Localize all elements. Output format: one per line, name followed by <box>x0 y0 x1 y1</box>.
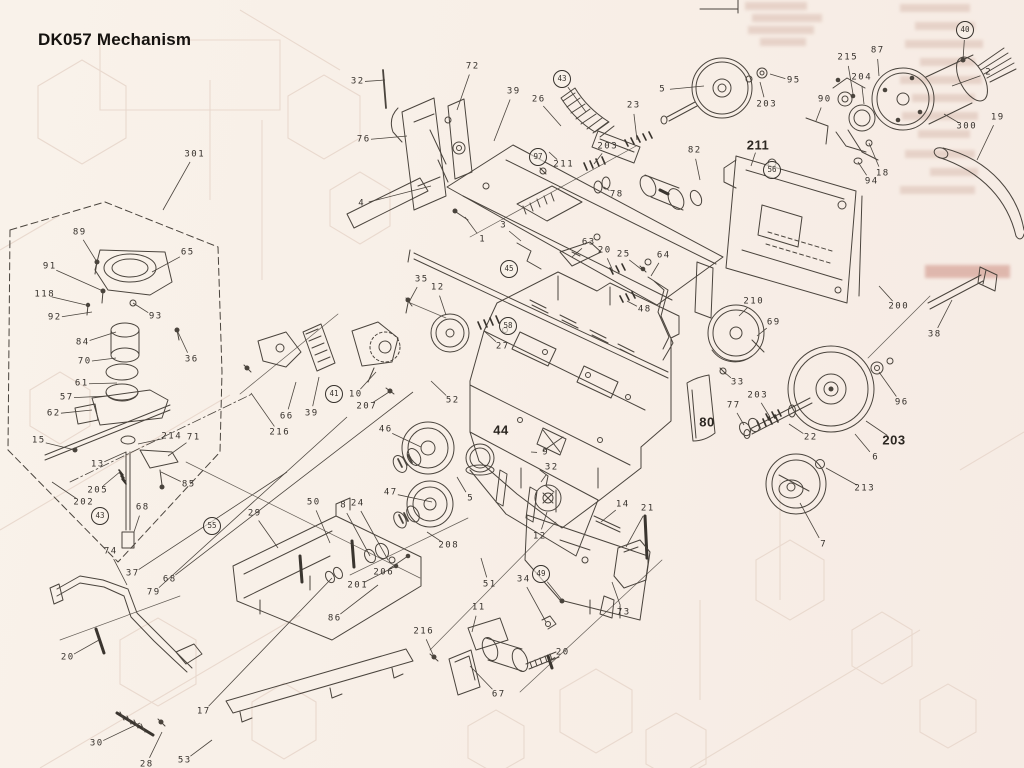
part-label-56: 56 <box>763 161 781 179</box>
part-label-203: 203 <box>882 434 905 447</box>
part-label-32: 32 <box>349 78 364 87</box>
part-label-91: 91 <box>41 263 56 272</box>
part-label-39: 39 <box>505 88 520 97</box>
part-label-23: 23 <box>625 102 640 111</box>
part-label-10: 10 <box>347 391 362 400</box>
part-label-37: 37 <box>124 570 139 579</box>
part-label-33: 33 <box>729 379 744 388</box>
part-label-78: 78 <box>608 191 623 200</box>
part-label-96: 96 <box>893 399 908 408</box>
part-label-69: 69 <box>765 319 780 328</box>
part-label-11: 11 <box>470 604 485 613</box>
part-label-66: 66 <box>278 413 293 422</box>
part-label-35: 35 <box>413 276 428 285</box>
part-label-30: 30 <box>88 740 103 749</box>
part-label-40: 40 <box>956 21 974 39</box>
part-label-71: 71 <box>185 434 200 443</box>
part-label-203: 203 <box>755 101 777 110</box>
part-label-49: 49 <box>532 565 550 583</box>
part-label-45: 45 <box>500 260 518 278</box>
part-label-8: 8 <box>339 502 347 511</box>
part-label-61: 61 <box>73 380 88 389</box>
part-label-94: 94 <box>863 178 878 187</box>
part-label-27: 27 <box>494 343 509 352</box>
part-label-4: 4 <box>357 200 365 209</box>
part-label-26: 26 <box>530 96 545 105</box>
part-label-200: 200 <box>887 303 909 312</box>
part-label-38: 38 <box>926 331 941 340</box>
part-label-3: 3 <box>499 222 507 231</box>
part-label-86: 86 <box>326 615 341 624</box>
part-label-210: 210 <box>742 298 764 307</box>
part-label-70: 70 <box>76 358 91 367</box>
part-label-21: 21 <box>639 505 654 514</box>
part-label-211: 211 <box>552 161 574 170</box>
part-label-43: 43 <box>553 70 571 88</box>
part-label-67: 67 <box>490 691 505 700</box>
part-label-53: 53 <box>176 757 191 766</box>
part-label-5: 5 <box>658 86 666 95</box>
part-label-55: 55 <box>203 517 221 535</box>
part-label-213: 213 <box>853 485 875 494</box>
part-label-6: 6 <box>871 454 879 463</box>
part-label-20: 20 <box>554 649 569 658</box>
part-label-95: 95 <box>785 77 800 86</box>
part-label-5: 5 <box>466 495 474 504</box>
part-label-208: 208 <box>437 542 459 551</box>
part-label-50: 50 <box>305 499 320 508</box>
part-label-79: 79 <box>145 589 160 598</box>
part-label-73: 73 <box>615 609 630 618</box>
part-label-74: 74 <box>102 548 117 557</box>
part-label-24: 24 <box>349 500 364 509</box>
part-label-15: 15 <box>30 437 45 446</box>
part-label-12: 12 <box>429 284 444 293</box>
part-label-20: 20 <box>59 654 74 663</box>
part-label-19: 19 <box>989 114 1004 123</box>
part-label-48: 48 <box>636 306 651 315</box>
part-label-41: 41 <box>325 385 343 403</box>
part-label-43: 43 <box>91 507 109 525</box>
part-label-211: 211 <box>747 139 769 152</box>
part-label-82: 82 <box>686 147 701 156</box>
part-label-68: 68 <box>161 576 176 585</box>
scanned-manual-page: 3018965911189293843670615762152147113205… <box>0 0 1024 768</box>
part-label-85: 85 <box>180 481 195 490</box>
part-label-28: 28 <box>138 761 153 768</box>
part-label-92: 92 <box>46 314 61 323</box>
part-label-201: 201 <box>346 582 368 591</box>
part-label-25: 25 <box>615 251 630 260</box>
part-label-63: 63 <box>580 239 595 248</box>
part-label-20: 20 <box>596 247 611 256</box>
part-label-203: 203 <box>746 392 768 401</box>
part-label-84: 84 <box>74 339 89 348</box>
part-label-62: 62 <box>45 410 60 419</box>
part-label-36: 36 <box>183 356 198 365</box>
part-label-90: 90 <box>816 96 831 105</box>
part-label-9: 9 <box>541 449 549 458</box>
part-label-22: 22 <box>802 434 817 443</box>
part-labels-layer: 3018965911189293843670615762152147113205… <box>0 0 1024 768</box>
part-label-205: 205 <box>86 487 108 496</box>
part-label-204: 204 <box>850 74 872 83</box>
part-label-93: 93 <box>147 313 162 322</box>
part-label-17: 17 <box>195 708 210 717</box>
part-label-34: 34 <box>515 576 530 585</box>
part-label-29: 29 <box>246 510 261 519</box>
part-label-87: 87 <box>869 47 884 56</box>
part-label-76: 76 <box>355 136 370 145</box>
part-label-80: 80 <box>699 416 714 429</box>
part-label-68: 68 <box>134 504 149 513</box>
part-label-301: 301 <box>183 151 205 160</box>
part-label-52: 52 <box>444 397 459 406</box>
page-title: DK057 Mechanism <box>38 30 191 50</box>
part-label-216: 216 <box>412 628 434 637</box>
part-label-7: 7 <box>819 541 827 550</box>
part-label-1: 1 <box>478 236 486 245</box>
part-label-77: 77 <box>725 402 740 411</box>
part-label-12: 12 <box>531 533 546 542</box>
part-label-39: 39 <box>303 410 318 419</box>
part-label-206: 206 <box>372 569 394 578</box>
part-label-65: 65 <box>179 249 194 258</box>
part-label-97: 97 <box>529 148 547 166</box>
part-label-203: 203 <box>596 143 618 152</box>
part-label-207: 207 <box>355 403 377 412</box>
part-label-118: 118 <box>33 291 55 300</box>
part-label-64: 64 <box>655 252 670 261</box>
part-label-216: 216 <box>268 429 290 438</box>
part-label-47: 47 <box>382 489 397 498</box>
part-label-214: 214 <box>160 433 182 442</box>
part-label-202: 202 <box>72 499 94 508</box>
part-label-46: 46 <box>377 426 392 435</box>
part-label-51: 51 <box>481 581 496 590</box>
part-label-300: 300 <box>955 123 977 132</box>
part-label-215: 215 <box>836 54 858 63</box>
part-label-89: 89 <box>71 229 86 238</box>
part-label-32: 32 <box>543 464 558 473</box>
part-label-2: 2 <box>984 69 992 78</box>
part-label-72: 72 <box>464 63 479 72</box>
part-label-44: 44 <box>493 424 508 437</box>
part-label-58: 58 <box>499 317 517 335</box>
part-label-57: 57 <box>58 394 73 403</box>
part-label-13: 13 <box>89 461 104 470</box>
part-label-14: 14 <box>614 501 629 510</box>
